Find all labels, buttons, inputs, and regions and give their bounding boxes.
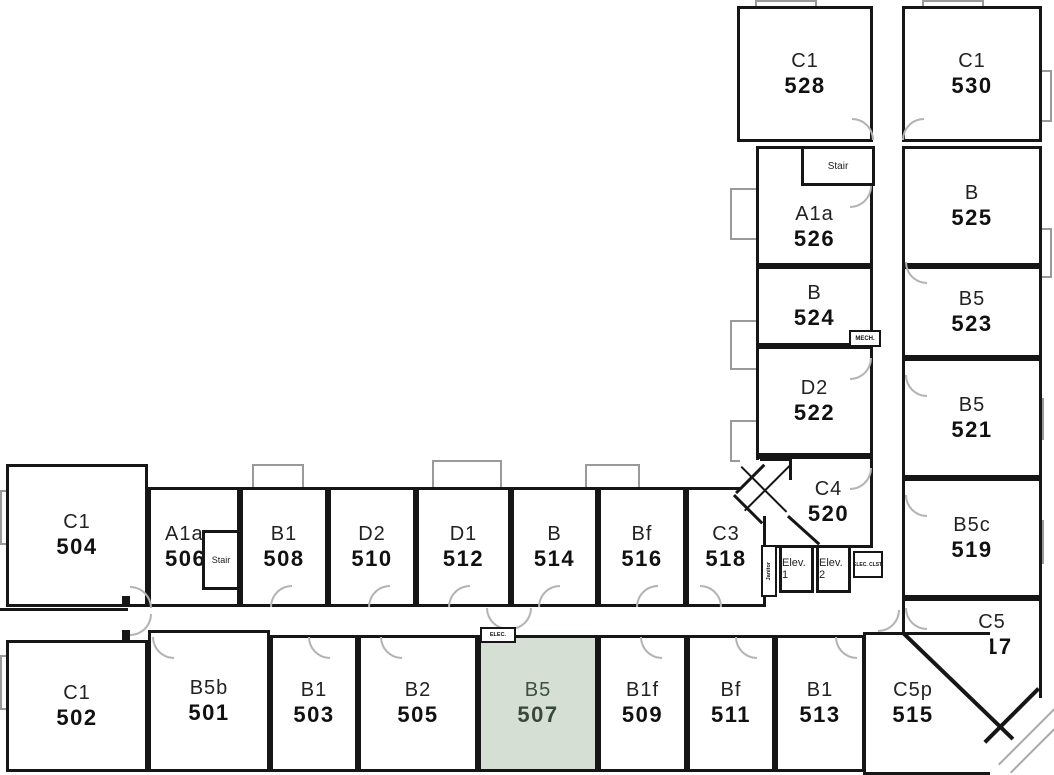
- unit-number: 510: [351, 546, 392, 571]
- unit-type: A1a: [795, 203, 834, 226]
- unit-525[interactable]: B 525: [902, 146, 1042, 266]
- elevator-2-label: Elev. 2: [819, 557, 848, 581]
- unit-type: C3: [712, 523, 740, 546]
- unit-number: 519: [951, 537, 992, 562]
- unit-number: 523: [951, 311, 992, 336]
- stair-lower-label: Stair: [212, 555, 231, 565]
- unit-type: B5: [959, 288, 985, 311]
- elevator-1[interactable]: Elev. 1: [779, 545, 814, 593]
- door-jamb: [122, 596, 130, 606]
- unit-510[interactable]: D2 510: [328, 487, 416, 607]
- door-jamb: [122, 630, 130, 640]
- balcony: [432, 460, 502, 489]
- unit-509[interactable]: B1f 509: [598, 635, 687, 772]
- mech-closet[interactable]: MECH.: [849, 330, 881, 347]
- unit-number: 520: [808, 501, 849, 526]
- unit-type: B5c: [953, 514, 990, 537]
- unit-number: 530: [951, 73, 992, 98]
- unit-516[interactable]: Bf 516: [598, 487, 686, 607]
- unit-type: C1: [63, 682, 91, 705]
- unit-number: 511: [711, 702, 751, 727]
- balcony: [730, 320, 758, 370]
- unit-type: D1: [450, 523, 478, 546]
- elec-room[interactable]: ELEC.: [480, 627, 516, 643]
- unit-505[interactable]: B2 505: [358, 635, 478, 772]
- janitor-label: Janitor: [766, 562, 772, 580]
- unit-number: 522: [794, 400, 835, 425]
- door-swing: [878, 610, 900, 632]
- unit-504[interactable]: C1 504: [6, 464, 148, 607]
- unit-number: 516: [621, 546, 662, 571]
- unit-type: C5: [978, 611, 1006, 634]
- unit-511[interactable]: Bf 511: [687, 635, 775, 772]
- unit-type: C1: [791, 50, 819, 73]
- stair-upper[interactable]: Stair: [801, 146, 875, 186]
- unit-type: B2: [405, 679, 431, 702]
- unit-type: C5p: [893, 679, 933, 702]
- unit-type: D2: [358, 523, 386, 546]
- unit-number: 505: [397, 702, 438, 727]
- unit-number: 518: [705, 546, 746, 571]
- unit-type: D2: [801, 377, 829, 400]
- unit-type: Bf: [632, 523, 653, 546]
- unit-number: 502: [56, 705, 97, 730]
- elevator-1-label: Elev. 1: [782, 557, 811, 581]
- unit-number: 504: [56, 534, 97, 559]
- unit-number: 513: [799, 702, 840, 727]
- unit-type: B: [547, 523, 561, 546]
- mech-label: MECH.: [855, 336, 874, 342]
- unit-number: 526: [794, 226, 835, 251]
- unit-number: 508: [263, 546, 304, 571]
- party-wall: [0, 608, 128, 611]
- unit-type: B1: [807, 679, 833, 702]
- unit-number: 503: [293, 702, 334, 727]
- unit-number: 507: [517, 702, 558, 727]
- unit-type: B1f: [626, 679, 659, 702]
- unit-number: 524: [794, 305, 835, 330]
- unit-number: 512: [443, 546, 484, 571]
- unit-number: 514: [534, 546, 575, 571]
- unit-number: 509: [622, 702, 663, 727]
- elevator-2[interactable]: Elev. 2: [816, 545, 851, 593]
- elec-closet-label: ELEC. CLST.: [853, 562, 883, 568]
- vestibule-wall: [760, 458, 792, 461]
- unit-type: B: [965, 182, 979, 205]
- unit-type: B5b: [190, 677, 229, 700]
- unit-type: B1: [271, 523, 297, 546]
- unit-507-highlighted[interactable]: B5 507: [478, 635, 598, 772]
- unit-number: 521: [951, 417, 992, 442]
- unit-type: B: [807, 282, 821, 305]
- unit-type: Bf: [721, 679, 742, 702]
- unit-number: 528: [784, 73, 825, 98]
- unit-type: C1: [958, 50, 986, 73]
- unit-type: B5: [959, 394, 985, 417]
- unit-number: 525: [951, 205, 992, 230]
- elec-closet[interactable]: ELEC. CLST.: [853, 551, 883, 578]
- balcony: [730, 188, 758, 240]
- balcony: [252, 464, 304, 489]
- elec-label: ELEC.: [490, 632, 506, 638]
- unit-type: C1: [63, 511, 91, 534]
- janitor-closet[interactable]: Janitor: [761, 545, 777, 597]
- balcony: [730, 420, 758, 462]
- unit-type: B1: [301, 679, 327, 702]
- balcony: [585, 464, 640, 489]
- unit-number: 515: [892, 702, 933, 727]
- unit-number: 506: [165, 546, 206, 571]
- unit-type: B5: [525, 679, 551, 702]
- unit-503[interactable]: B1 503: [270, 635, 358, 772]
- unit-number: 501: [188, 700, 229, 725]
- unit-type: C4: [815, 478, 843, 501]
- unit-502[interactable]: C1 502: [6, 640, 148, 772]
- floor-plan: C1 528 A1a 526 Stair B 524 D2 522 MECH. …: [0, 0, 1054, 775]
- vestibule-wall: [789, 458, 792, 480]
- stair-upper-label: Stair: [828, 161, 849, 172]
- stair-lower[interactable]: Stair: [202, 530, 240, 590]
- unit-type: A1a: [165, 523, 204, 546]
